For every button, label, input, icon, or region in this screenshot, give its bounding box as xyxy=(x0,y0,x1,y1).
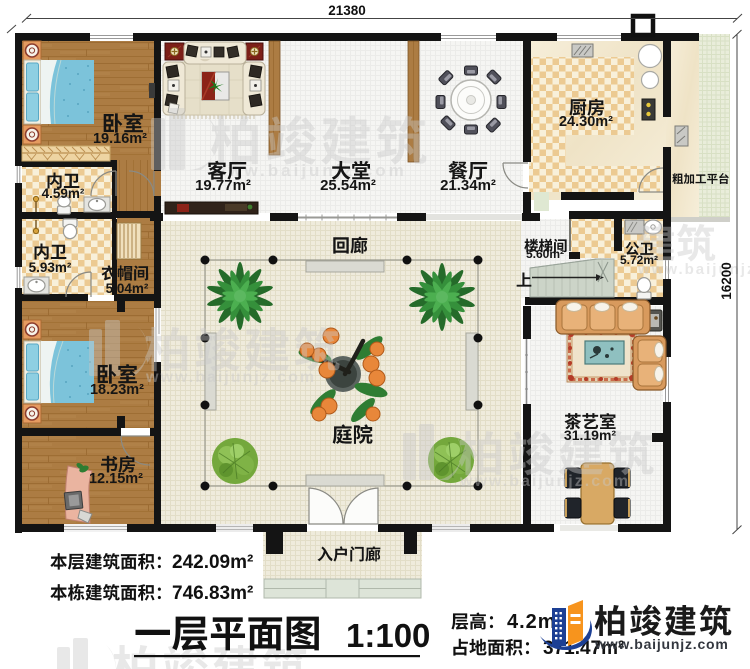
svg-text:746.83m²: 746.83m² xyxy=(172,583,253,604)
svg-text:21.34m²: 21.34m² xyxy=(440,177,496,194)
svg-text:4.59m²: 4.59m² xyxy=(42,186,85,201)
svg-text:242.09m²: 242.09m² xyxy=(172,552,253,573)
svg-text:4.2m: 4.2m xyxy=(507,611,557,633)
svg-text:1:100: 1:100 xyxy=(346,617,430,654)
svg-text:19.77m²: 19.77m² xyxy=(195,177,251,194)
svg-text:19.16m²: 19.16m² xyxy=(93,131,147,147)
svg-text:5.72m²: 5.72m² xyxy=(620,253,658,267)
svg-text:5.93m²: 5.93m² xyxy=(29,260,72,275)
svg-text:21380: 21380 xyxy=(328,3,366,18)
svg-text:5.60m²: 5.60m² xyxy=(526,247,564,261)
svg-text:www.baijunjz.com: www.baijunjz.com xyxy=(459,473,630,490)
svg-text:5.04m²: 5.04m² xyxy=(106,281,149,296)
svg-text:31.19m²: 31.19m² xyxy=(564,427,616,443)
svg-text:16200: 16200 xyxy=(719,262,734,300)
svg-text:www.baijunjz.com: www.baijunjz.com xyxy=(594,636,729,652)
svg-text:25.54m²: 25.54m² xyxy=(320,177,376,194)
svg-text:24.30m²: 24.30m² xyxy=(559,114,613,130)
svg-text:12.15m²: 12.15m² xyxy=(89,471,143,487)
svg-text:www.baijunjz.com: www.baijunjz.com xyxy=(145,369,316,386)
svg-text:18.23m²: 18.23m² xyxy=(90,382,144,398)
